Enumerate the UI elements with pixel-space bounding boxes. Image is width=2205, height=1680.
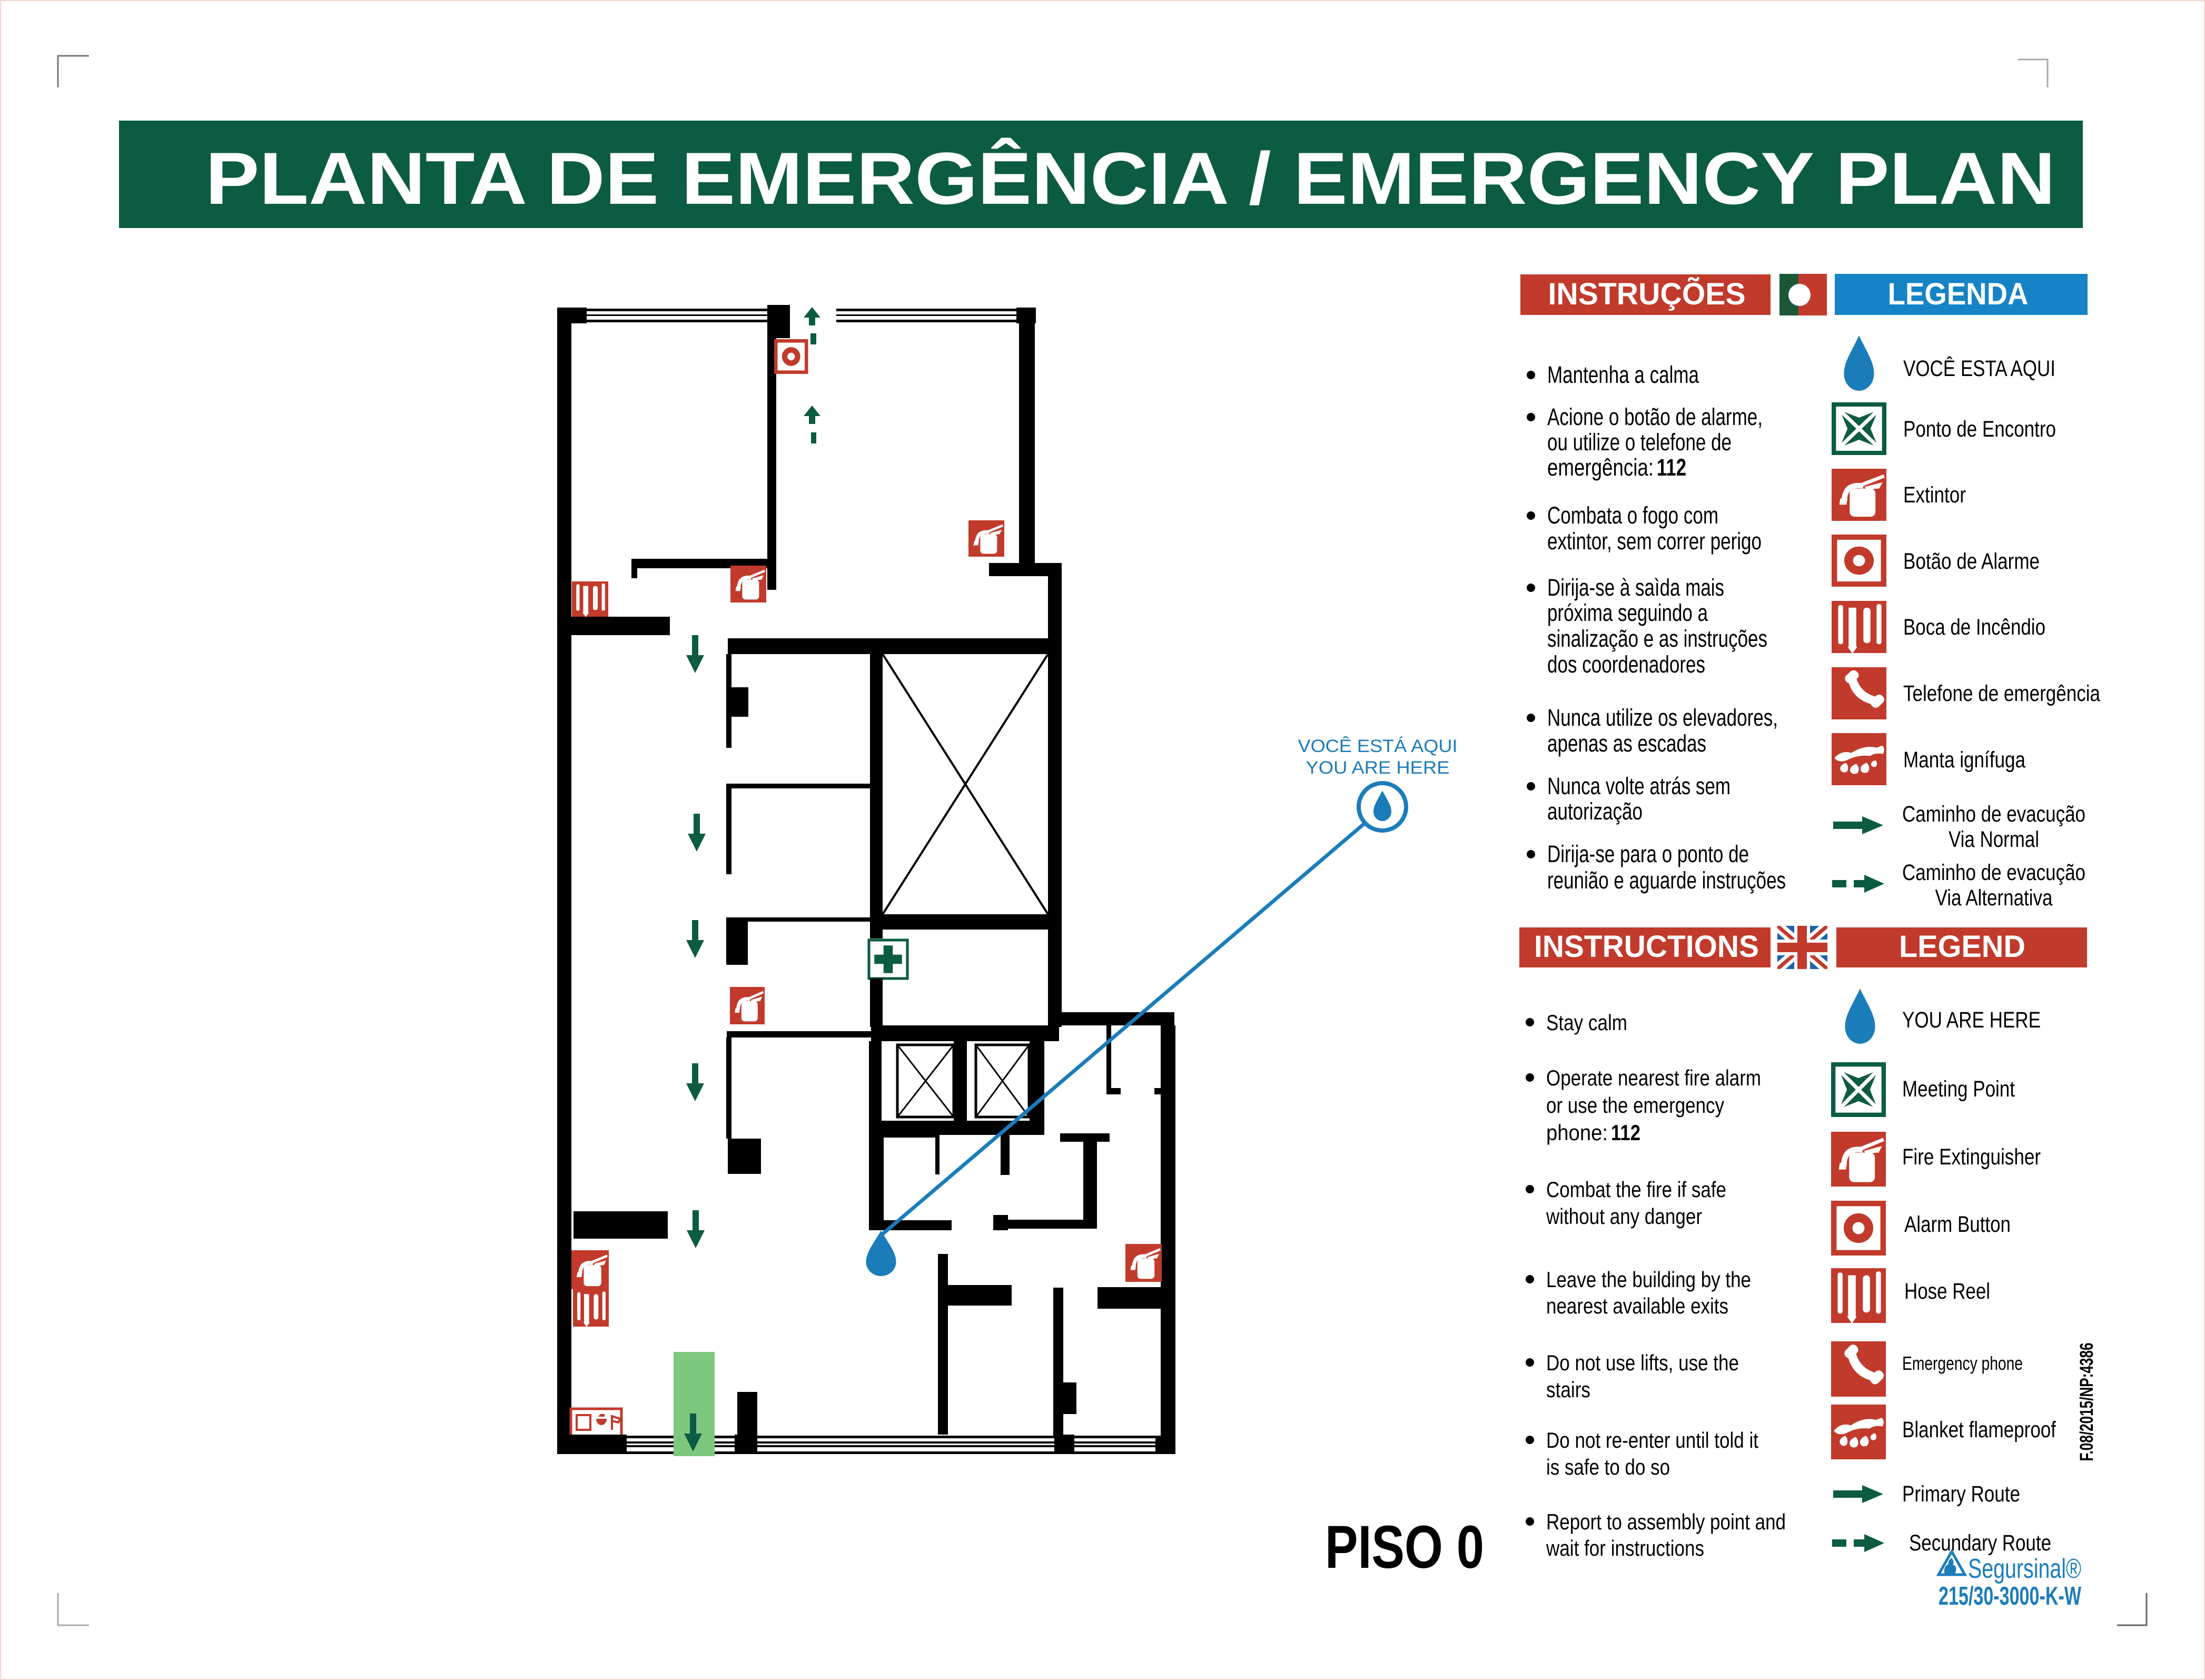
svg-text:Botão de Alarme: Botão de Alarme: [1903, 549, 2040, 574]
svg-text:Hose Reel: Hose Reel: [1904, 1279, 1990, 1304]
svg-text:INSTRUÇÕES: INSTRUÇÕES: [1548, 277, 1746, 311]
svg-text:215/30-3000-K-W: 215/30-3000-K-W: [1939, 1582, 2082, 1610]
svg-text:Manta ignífuga: Manta ignífuga: [1903, 747, 2025, 773]
svg-text:Dirija-se à saìda mais: Dirija-se à saìda mais: [1547, 574, 1724, 601]
svg-text:Mantenha a calma: Mantenha a calma: [1547, 361, 1699, 388]
svg-text:sinalização e as instruções: sinalização e as instruções: [1547, 625, 1767, 652]
svg-text:Secundary Route: Secundary Route: [1909, 1530, 2051, 1556]
svg-text:stairs: stairs: [1546, 1377, 1590, 1402]
svg-text:Dirija-se para o ponto de: Dirija-se para o ponto de: [1547, 841, 1749, 867]
svg-text:YOU ARE HERE: YOU ARE HERE: [1306, 758, 1450, 778]
svg-text:is safe to do so: is safe to do so: [1546, 1455, 1670, 1479]
svg-text:reunião e aguarde instruções: reunião e aguarde instruções: [1547, 867, 1786, 894]
svg-text:Alarm Button: Alarm Button: [1904, 1212, 2011, 1237]
svg-text:Leave the building by the: Leave the building by the: [1546, 1267, 1751, 1292]
svg-text:próxima seguindo a: próxima seguindo a: [1547, 599, 1708, 626]
svg-text:Extintor: Extintor: [1903, 482, 1966, 508]
svg-text:F.08/2015/NP:4386: F.08/2015/NP:4386: [2077, 1343, 2097, 1461]
svg-text:wait for instructions: wait for instructions: [1546, 1536, 1704, 1560]
svg-text:Caminho de evacução: Caminho de evacução: [1902, 860, 2085, 885]
svg-text:Meeting Point: Meeting Point: [1902, 1076, 2015, 1102]
svg-text:PISO 0: PISO 0: [1325, 1514, 1484, 1581]
svg-text:Acione o botão de alarme,: Acione o botão de alarme,: [1547, 403, 1763, 430]
svg-text:apenas as escadas: apenas as escadas: [1547, 730, 1706, 757]
svg-text:Blanket flameproof: Blanket flameproof: [1902, 1417, 2056, 1442]
svg-text:autorização: autorização: [1547, 798, 1643, 825]
svg-text:LEGENDA: LEGENDA: [1888, 277, 2029, 311]
svg-text:112: 112: [1657, 454, 1686, 481]
svg-text:Combat the fire if safe: Combat the fire if safe: [1546, 1177, 1726, 1202]
svg-text:nearest available exits: nearest available exits: [1546, 1293, 1728, 1318]
svg-text:PLANTA DE EMERGÊNCIA / EMERGEN: PLANTA DE EMERGÊNCIA / EMERGENCY PLAN: [205, 137, 2055, 220]
svg-text:without any danger: without any danger: [1546, 1204, 1702, 1229]
svg-text:Report to assembly point and: Report to assembly point and: [1546, 1509, 1786, 1534]
svg-text:VOCÊ ESTA AQUI: VOCÊ ESTA AQUI: [1903, 356, 2055, 381]
svg-text:emergência:: emergência:: [1547, 454, 1654, 481]
svg-text:Telefone de emergência: Telefone de emergência: [1903, 681, 2100, 706]
svg-text:or use the emergency: or use the emergency: [1546, 1093, 1724, 1118]
svg-text:VOCÊ ESTÁ AQUI: VOCÊ ESTÁ AQUI: [1298, 736, 1458, 756]
svg-text:dos coordenadores: dos coordenadores: [1547, 651, 1705, 678]
svg-text:Ponto de Encontro: Ponto de Encontro: [1903, 417, 2056, 442]
svg-text:Caminho de evacução: Caminho de evacução: [1902, 802, 2085, 827]
svg-text:Do not use lifts, use the: Do not use lifts, use the: [1546, 1350, 1739, 1375]
svg-text:Do not re-enter until told it: Do not re-enter until told it: [1546, 1428, 1758, 1452]
svg-text:Via Normal: Via Normal: [1949, 827, 2039, 852]
svg-text:Emergency phone: Emergency phone: [1902, 1352, 2023, 1374]
svg-text:Primary Route: Primary Route: [1902, 1481, 2020, 1507]
svg-text:Nunca volte atrás sem: Nunca volte atrás sem: [1547, 773, 1731, 799]
svg-text:phone:: phone:: [1546, 1120, 1608, 1145]
svg-text:Operate nearest fire alarm: Operate nearest fire alarm: [1546, 1065, 1761, 1090]
svg-text:Segursinal®: Segursinal®: [1968, 1554, 2081, 1584]
svg-text:112: 112: [1611, 1120, 1640, 1145]
svg-text:Fire Extinguisher: Fire Extinguisher: [1902, 1144, 2041, 1170]
svg-text:Nunca utilize os elevadores,: Nunca utilize os elevadores,: [1547, 704, 1778, 731]
svg-text:Stay calm: Stay calm: [1546, 1010, 1627, 1035]
svg-text:ou utilize o telefone de: ou utilize o telefone de: [1547, 429, 1732, 456]
svg-text:Via Alternativa: Via Alternativa: [1935, 885, 2053, 911]
svg-text:YOU ARE HERE: YOU ARE HERE: [1902, 1007, 2041, 1033]
svg-text:Combata o fogo com: Combata o fogo com: [1547, 502, 1718, 529]
svg-text:LEGEND: LEGEND: [1899, 930, 2025, 964]
svg-text:INSTRUCTIONS: INSTRUCTIONS: [1534, 930, 1759, 964]
svg-text:extintor, sem correr perigo: extintor, sem correr perigo: [1547, 528, 1762, 555]
svg-text:Boca de Incêndio: Boca de Incêndio: [1903, 615, 2045, 640]
